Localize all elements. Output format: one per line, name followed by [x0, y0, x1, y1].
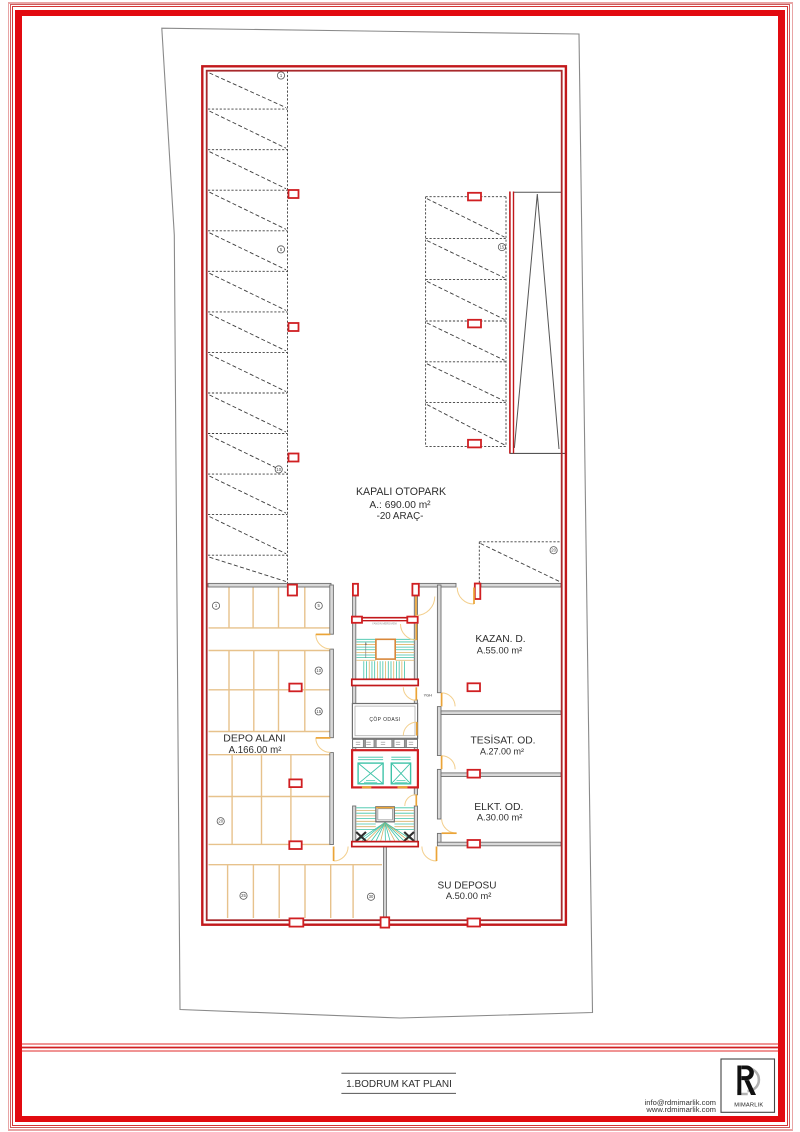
svg-text:10: 10: [276, 467, 281, 472]
svg-text:MIMARLIK: MIMARLIK: [734, 1102, 763, 1108]
svg-text:-20 ARAÇ-: -20 ARAÇ-: [377, 511, 424, 522]
svg-text:YANGIN MERDIVENI: YANGIN MERDIVENI: [372, 621, 397, 625]
svg-text:ÇÖP ODASI: ÇÖP ODASI: [369, 716, 400, 723]
svg-text:20: 20: [551, 548, 556, 553]
svg-text:1.BODRUM KAT PLANI: 1.BODRUM KAT PLANI: [346, 1079, 452, 1090]
svg-text:A.27.00 m²: A.27.00 m²: [480, 747, 524, 757]
svg-text:A.166.00 m²: A.166.00 m²: [229, 745, 283, 756]
svg-text:15: 15: [316, 709, 321, 714]
svg-text:KAZAN. D.: KAZAN. D.: [475, 634, 525, 645]
svg-text:www.rdmimarlik.com: www.rdmimarlik.com: [645, 1105, 716, 1114]
svg-text:A.: 690.00 m²: A.: 690.00 m²: [369, 500, 431, 511]
svg-text:A.55.00 m²: A.55.00 m²: [477, 646, 522, 656]
svg-text:YGH: YGH: [424, 694, 432, 698]
svg-text:25: 25: [241, 893, 246, 898]
svg-text:20: 20: [218, 819, 223, 824]
svg-text:ELKT. OD.: ELKT. OD.: [474, 802, 523, 813]
svg-text:10: 10: [316, 668, 321, 673]
svg-text:30: 30: [369, 894, 374, 899]
svg-text:KAPALI OTOPARK: KAPALI OTOPARK: [356, 486, 446, 498]
svg-text:15: 15: [500, 245, 505, 250]
svg-text:DEPO ALANI: DEPO ALANI: [223, 733, 285, 745]
svg-text:TESİSAT. OD.: TESİSAT. OD.: [470, 733, 535, 746]
svg-text:A.30.00 m²: A.30.00 m²: [477, 813, 522, 823]
svg-text:A.50.00 m²: A.50.00 m²: [446, 891, 491, 901]
